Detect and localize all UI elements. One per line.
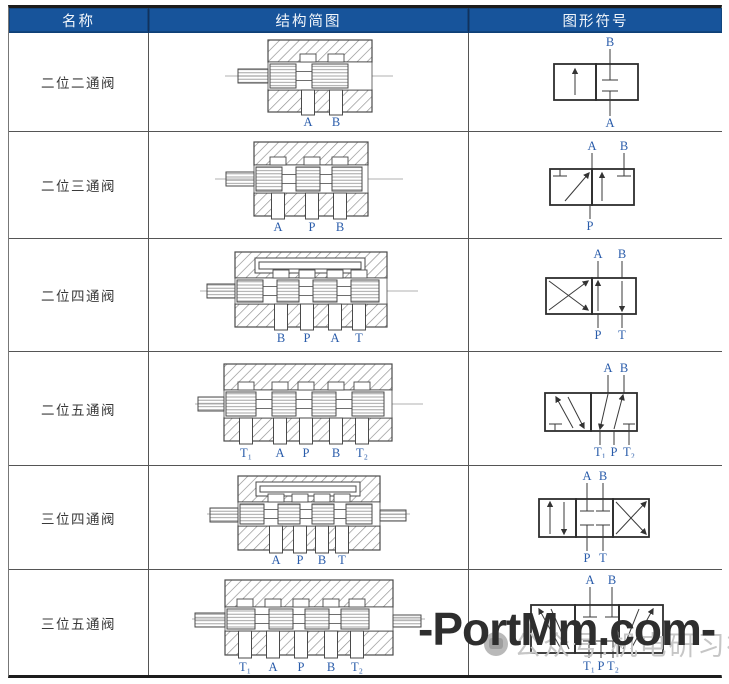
port-label: B xyxy=(335,220,343,234)
port-label: T₂ xyxy=(623,445,635,458)
port-label: B xyxy=(619,361,627,375)
valve-name: 二位三通阀 xyxy=(41,175,116,195)
port-label: B xyxy=(331,115,339,129)
header-cell-structure: 结构简图 xyxy=(149,8,469,33)
symbol-diagram: A B P T xyxy=(531,471,661,565)
row-3-name-cell: 二位五通阀 xyxy=(9,352,149,466)
watermark-text: -PortMm.com- xyxy=(418,602,715,656)
valve-name: 三位四通阀 xyxy=(41,508,116,528)
row-3-symbol-cell: A B T₁ P T₂ xyxy=(469,352,722,466)
symbol-diagram: A B P T xyxy=(536,249,656,341)
row-0-name-cell: 二位二通阀 xyxy=(9,33,149,132)
port-label: B xyxy=(617,249,625,261)
port-label: B xyxy=(318,553,326,567)
row-2-symbol-cell: A B P T xyxy=(469,239,722,352)
port-label: B xyxy=(327,660,335,674)
port-label: P xyxy=(298,660,305,674)
structure-diagram: BPAT xyxy=(199,245,419,345)
row-4-name-cell: 三位四通阀 xyxy=(9,466,149,570)
port-label: A xyxy=(603,361,612,375)
structure-diagram: AB xyxy=(224,36,394,129)
port-label: P xyxy=(583,551,590,565)
row-4-structure-cell: APBT xyxy=(149,466,469,570)
port-label: P xyxy=(302,446,309,460)
row-0-symbol-cell: B A xyxy=(469,33,722,132)
port-label: T xyxy=(355,331,363,345)
port-label: A xyxy=(303,115,312,129)
row-4-symbol-cell: A B P T xyxy=(469,466,722,570)
port-label: A xyxy=(605,116,614,129)
port-label: B xyxy=(598,471,606,483)
port-label: P xyxy=(586,219,593,232)
valve-name: 二位二通阀 xyxy=(41,72,116,92)
port-label: B xyxy=(331,446,339,460)
valve-table: 名称 结构简图 图形符号 二位二通阀 AB B A 二位三通阀 APB A B xyxy=(8,5,722,678)
structure-diagram: T₁APBT₂ xyxy=(194,357,424,460)
header-label: 名称 xyxy=(62,10,95,31)
header-label: 图形符号 xyxy=(563,10,629,31)
valve-name: 二位四通阀 xyxy=(41,285,116,305)
row-3-structure-cell: T₁APBT₂ xyxy=(149,352,469,466)
port-label: A xyxy=(268,660,277,674)
row-1-structure-cell: APB xyxy=(149,132,469,239)
port-label: A xyxy=(587,139,596,153)
valve-name: 二位五通阀 xyxy=(41,399,116,419)
structure-diagram: APB xyxy=(214,137,404,234)
port-label: T xyxy=(338,553,346,567)
port-label: P xyxy=(297,553,304,567)
port-label: B xyxy=(619,139,627,153)
port-label: T xyxy=(599,551,607,565)
port-label: A xyxy=(593,249,602,261)
port-label: A xyxy=(582,471,591,483)
port-label: T₁ xyxy=(240,446,252,460)
port-label: A xyxy=(271,553,280,567)
structure-diagram: T₁APBT₂ xyxy=(191,571,426,674)
symbol-diagram: A B T₁ P T₂ xyxy=(537,360,655,458)
port-label: T₁ xyxy=(594,445,606,458)
port-label: B xyxy=(607,573,615,587)
symbol-diagram: B A xyxy=(536,35,656,129)
row-1-symbol-cell: A B P xyxy=(469,132,722,239)
port-label: A xyxy=(275,446,284,460)
port-label: P xyxy=(610,445,617,458)
port-label: B xyxy=(605,35,613,49)
port-label: A xyxy=(330,331,339,345)
port-label: B xyxy=(276,331,284,345)
structure-diagram: APBT xyxy=(206,468,411,567)
port-label: T₂ xyxy=(351,660,363,674)
port-label: A xyxy=(585,573,594,587)
row-2-name-cell: 二位四通阀 xyxy=(9,239,149,352)
port-label: P xyxy=(308,220,315,234)
header-cell-symbol: 图形符号 xyxy=(469,8,722,33)
port-label: A xyxy=(273,220,282,234)
port-label: T xyxy=(618,328,626,341)
port-label: T₁ xyxy=(239,660,251,674)
header-cell-name: 名称 xyxy=(9,8,149,33)
port-label: P xyxy=(303,331,310,345)
symbol-diagram: A B P xyxy=(536,138,656,232)
header-label: 结构简图 xyxy=(276,10,342,31)
valve-name: 三位五通阀 xyxy=(41,613,116,633)
port-label: P xyxy=(594,328,601,341)
port-label: T₂ xyxy=(356,446,368,460)
row-2-structure-cell: BPAT xyxy=(149,239,469,352)
row-1-name-cell: 二位三通阀 xyxy=(9,132,149,239)
row-5-name-cell: 三位五通阀 xyxy=(9,570,149,675)
row-0-structure-cell: AB xyxy=(149,33,469,132)
